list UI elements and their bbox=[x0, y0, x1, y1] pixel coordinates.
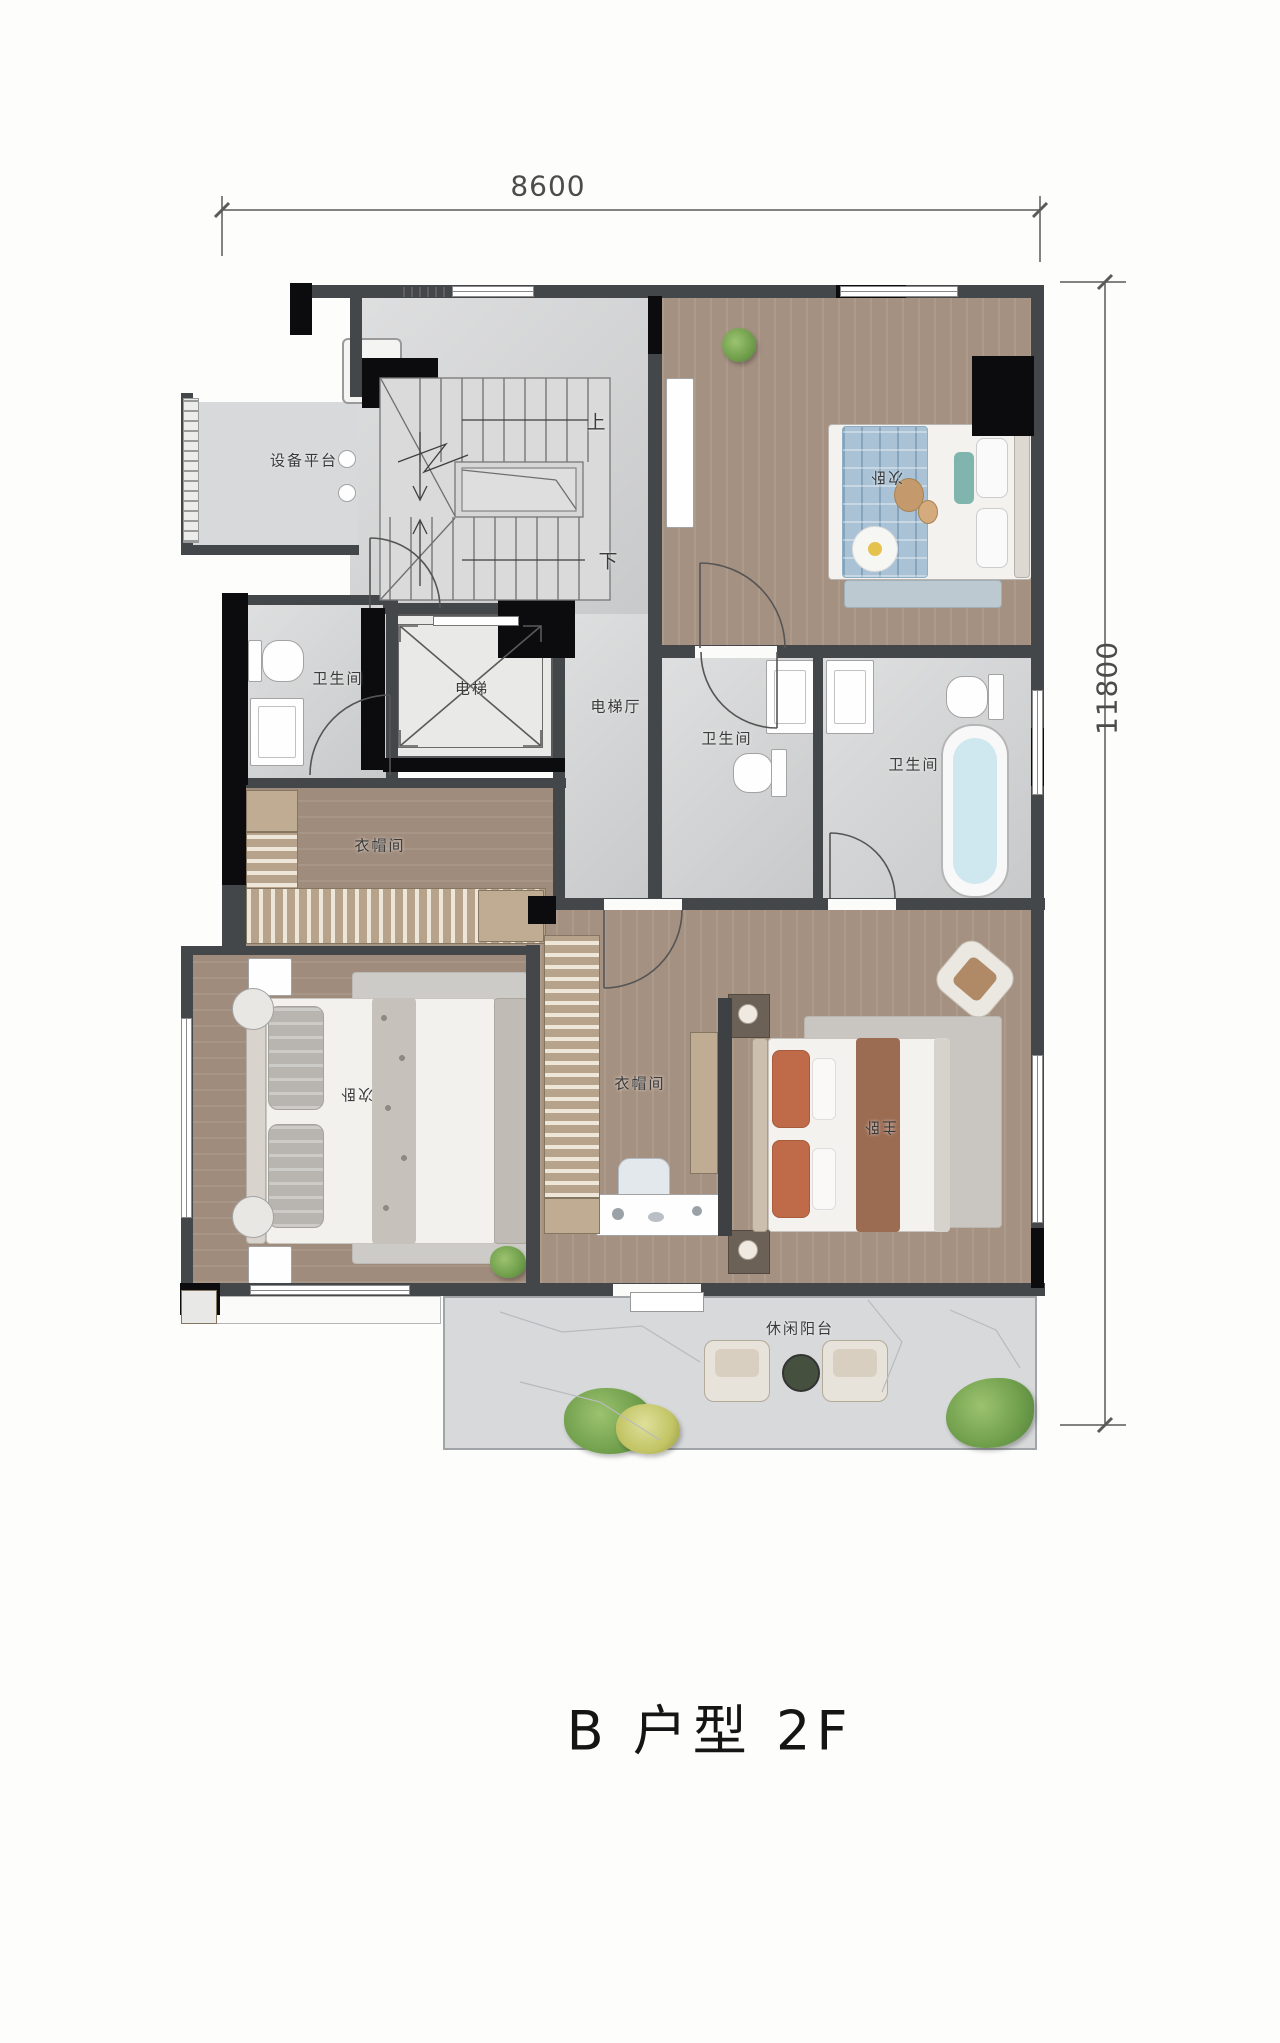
wall-chunk bbox=[528, 896, 556, 924]
platform-equipment bbox=[338, 484, 356, 502]
pillow bbox=[812, 1148, 836, 1210]
dimension-width-value: 8600 bbox=[510, 170, 585, 203]
room-label-cloakroom-master: 衣帽间 bbox=[614, 1073, 665, 1094]
platform-equipment bbox=[338, 450, 356, 468]
wall-bath-divider bbox=[813, 652, 823, 905]
window bbox=[250, 1285, 410, 1295]
room-label-bathroom-middle: 卫生间 bbox=[701, 728, 752, 749]
pillow-terracotta bbox=[772, 1050, 810, 1128]
room-label-elevator: 电梯 bbox=[455, 678, 489, 699]
wall-cloak1-left2 bbox=[222, 885, 246, 953]
pillow-teal bbox=[954, 452, 974, 504]
wardrobe-unit bbox=[544, 1198, 600, 1234]
vanity-item bbox=[692, 1206, 702, 1216]
window bbox=[452, 286, 534, 297]
room-label-equipment-platform: 设备平台 bbox=[270, 450, 338, 471]
dimension-line-top bbox=[215, 196, 1047, 262]
window bbox=[1032, 1055, 1043, 1223]
floor-plan-canvas: 设备平台 卫生间 电梯 电梯厅 次卧 卫生间 卫生间 衣帽间 次卧 衣帽间 主卧… bbox=[0, 0, 1280, 2043]
nightstand-lamp bbox=[738, 1004, 758, 1024]
door-opening-bath-middle bbox=[695, 646, 777, 658]
wall-platform-bottom bbox=[181, 545, 359, 555]
cabinet-tall bbox=[690, 1032, 718, 1174]
window bbox=[1032, 690, 1043, 795]
pillow-group bbox=[268, 1124, 324, 1228]
plant-icon bbox=[490, 1246, 526, 1278]
chair-cushion bbox=[833, 1349, 877, 1377]
round-rug bbox=[232, 1196, 274, 1238]
nightstand-lamp bbox=[738, 1240, 758, 1260]
pillow-group bbox=[268, 1006, 324, 1110]
bed-runner-floral bbox=[372, 998, 416, 1244]
ledge-hatch bbox=[181, 1290, 217, 1324]
toilet-tank bbox=[771, 749, 787, 797]
room-label-master-bedroom: 主卧 bbox=[863, 1118, 897, 1139]
platform-grate bbox=[183, 398, 199, 543]
wall-bedroom2-suite bbox=[526, 945, 540, 1293]
bathtub-water bbox=[953, 738, 997, 884]
wall-chunk bbox=[362, 358, 438, 408]
wall-cloak1-top bbox=[244, 778, 566, 788]
teddy-bear-icon bbox=[918, 500, 938, 524]
wall-chunk bbox=[383, 758, 565, 772]
toilet-icon bbox=[946, 676, 988, 718]
bed-fold bbox=[494, 998, 528, 1244]
plan-title: B 户型 2F bbox=[567, 1687, 854, 1766]
balcony-chair bbox=[822, 1340, 888, 1402]
vanity-item bbox=[648, 1212, 664, 1222]
bed-headboard bbox=[1014, 426, 1030, 578]
cabinet bbox=[666, 378, 694, 528]
balcony-table bbox=[782, 1354, 820, 1392]
wall-hall-right bbox=[648, 658, 662, 898]
floor-equipment-platform bbox=[192, 402, 358, 546]
room-label-bedroom-top: 次卧 bbox=[869, 468, 903, 489]
sink-basin bbox=[258, 706, 296, 758]
nightstand bbox=[248, 1246, 292, 1284]
room-label-cloakroom-upper: 衣帽间 bbox=[354, 835, 405, 856]
bed-fold bbox=[934, 1038, 950, 1232]
sink-basin bbox=[774, 670, 806, 724]
wall-chunk bbox=[648, 296, 662, 354]
elevator-door bbox=[433, 616, 519, 626]
door-opening-bath-master bbox=[828, 899, 896, 910]
dimension-height-value: 11800 bbox=[1091, 641, 1124, 735]
bed-bench bbox=[844, 580, 1002, 608]
wall-jog bbox=[181, 946, 246, 955]
wall-chunk bbox=[972, 356, 1034, 436]
pillow bbox=[976, 508, 1008, 568]
dimension-line-right bbox=[1060, 275, 1126, 1432]
wall-stair-left bbox=[350, 285, 362, 397]
bed-headboard bbox=[752, 1038, 768, 1232]
wall-master-bottom bbox=[528, 1283, 1045, 1296]
room-label-balcony: 休闲阳台 bbox=[766, 1318, 834, 1339]
window bbox=[840, 286, 958, 297]
wall-cloak1-left bbox=[222, 785, 246, 885]
armchair-cushion bbox=[951, 955, 999, 1003]
pillow bbox=[976, 438, 1008, 498]
wall-chunk bbox=[361, 608, 385, 770]
plant-icon bbox=[722, 328, 756, 362]
ledge-strip bbox=[183, 1296, 441, 1324]
balcony-step bbox=[630, 1292, 704, 1312]
room-label-bathroom-left: 卫生间 bbox=[312, 668, 363, 689]
wall-chunk bbox=[290, 283, 312, 335]
vanity-item bbox=[612, 1208, 624, 1220]
wall-partition-master bbox=[718, 998, 732, 1236]
wardrobe-unit bbox=[246, 790, 298, 832]
window bbox=[181, 1018, 192, 1218]
sink-basin bbox=[834, 670, 866, 724]
round-rug bbox=[232, 988, 274, 1030]
pillow-terracotta bbox=[772, 1140, 810, 1218]
room-label-bedroom-lower: 次卧 bbox=[339, 1085, 373, 1106]
room-label-bathroom-master: 卫生间 bbox=[888, 754, 939, 775]
wall-hall-left bbox=[553, 768, 565, 908]
stair-up-label: 上 bbox=[586, 408, 605, 435]
wall-chunk bbox=[1031, 1228, 1044, 1288]
toilet-icon bbox=[262, 640, 304, 682]
wall-bath1-top bbox=[240, 595, 396, 605]
stair-down-label: 下 bbox=[598, 547, 617, 574]
door-opening-master-suite bbox=[604, 899, 682, 910]
wall-cloak1-bottom bbox=[244, 946, 540, 955]
toilet-icon bbox=[733, 753, 773, 793]
balcony-chair bbox=[704, 1340, 770, 1402]
daisy-center bbox=[868, 542, 882, 556]
room-label-elevator-hall: 电梯厅 bbox=[590, 696, 641, 717]
toilet-tank bbox=[988, 674, 1004, 720]
chair-cushion bbox=[715, 1349, 759, 1377]
toilet-tank bbox=[248, 640, 262, 682]
wall-chunk bbox=[222, 593, 248, 631]
wardrobe-hanging bbox=[544, 935, 600, 1198]
plant-icon bbox=[616, 1404, 680, 1454]
pillow bbox=[812, 1058, 836, 1120]
wall-chunk bbox=[498, 600, 575, 658]
